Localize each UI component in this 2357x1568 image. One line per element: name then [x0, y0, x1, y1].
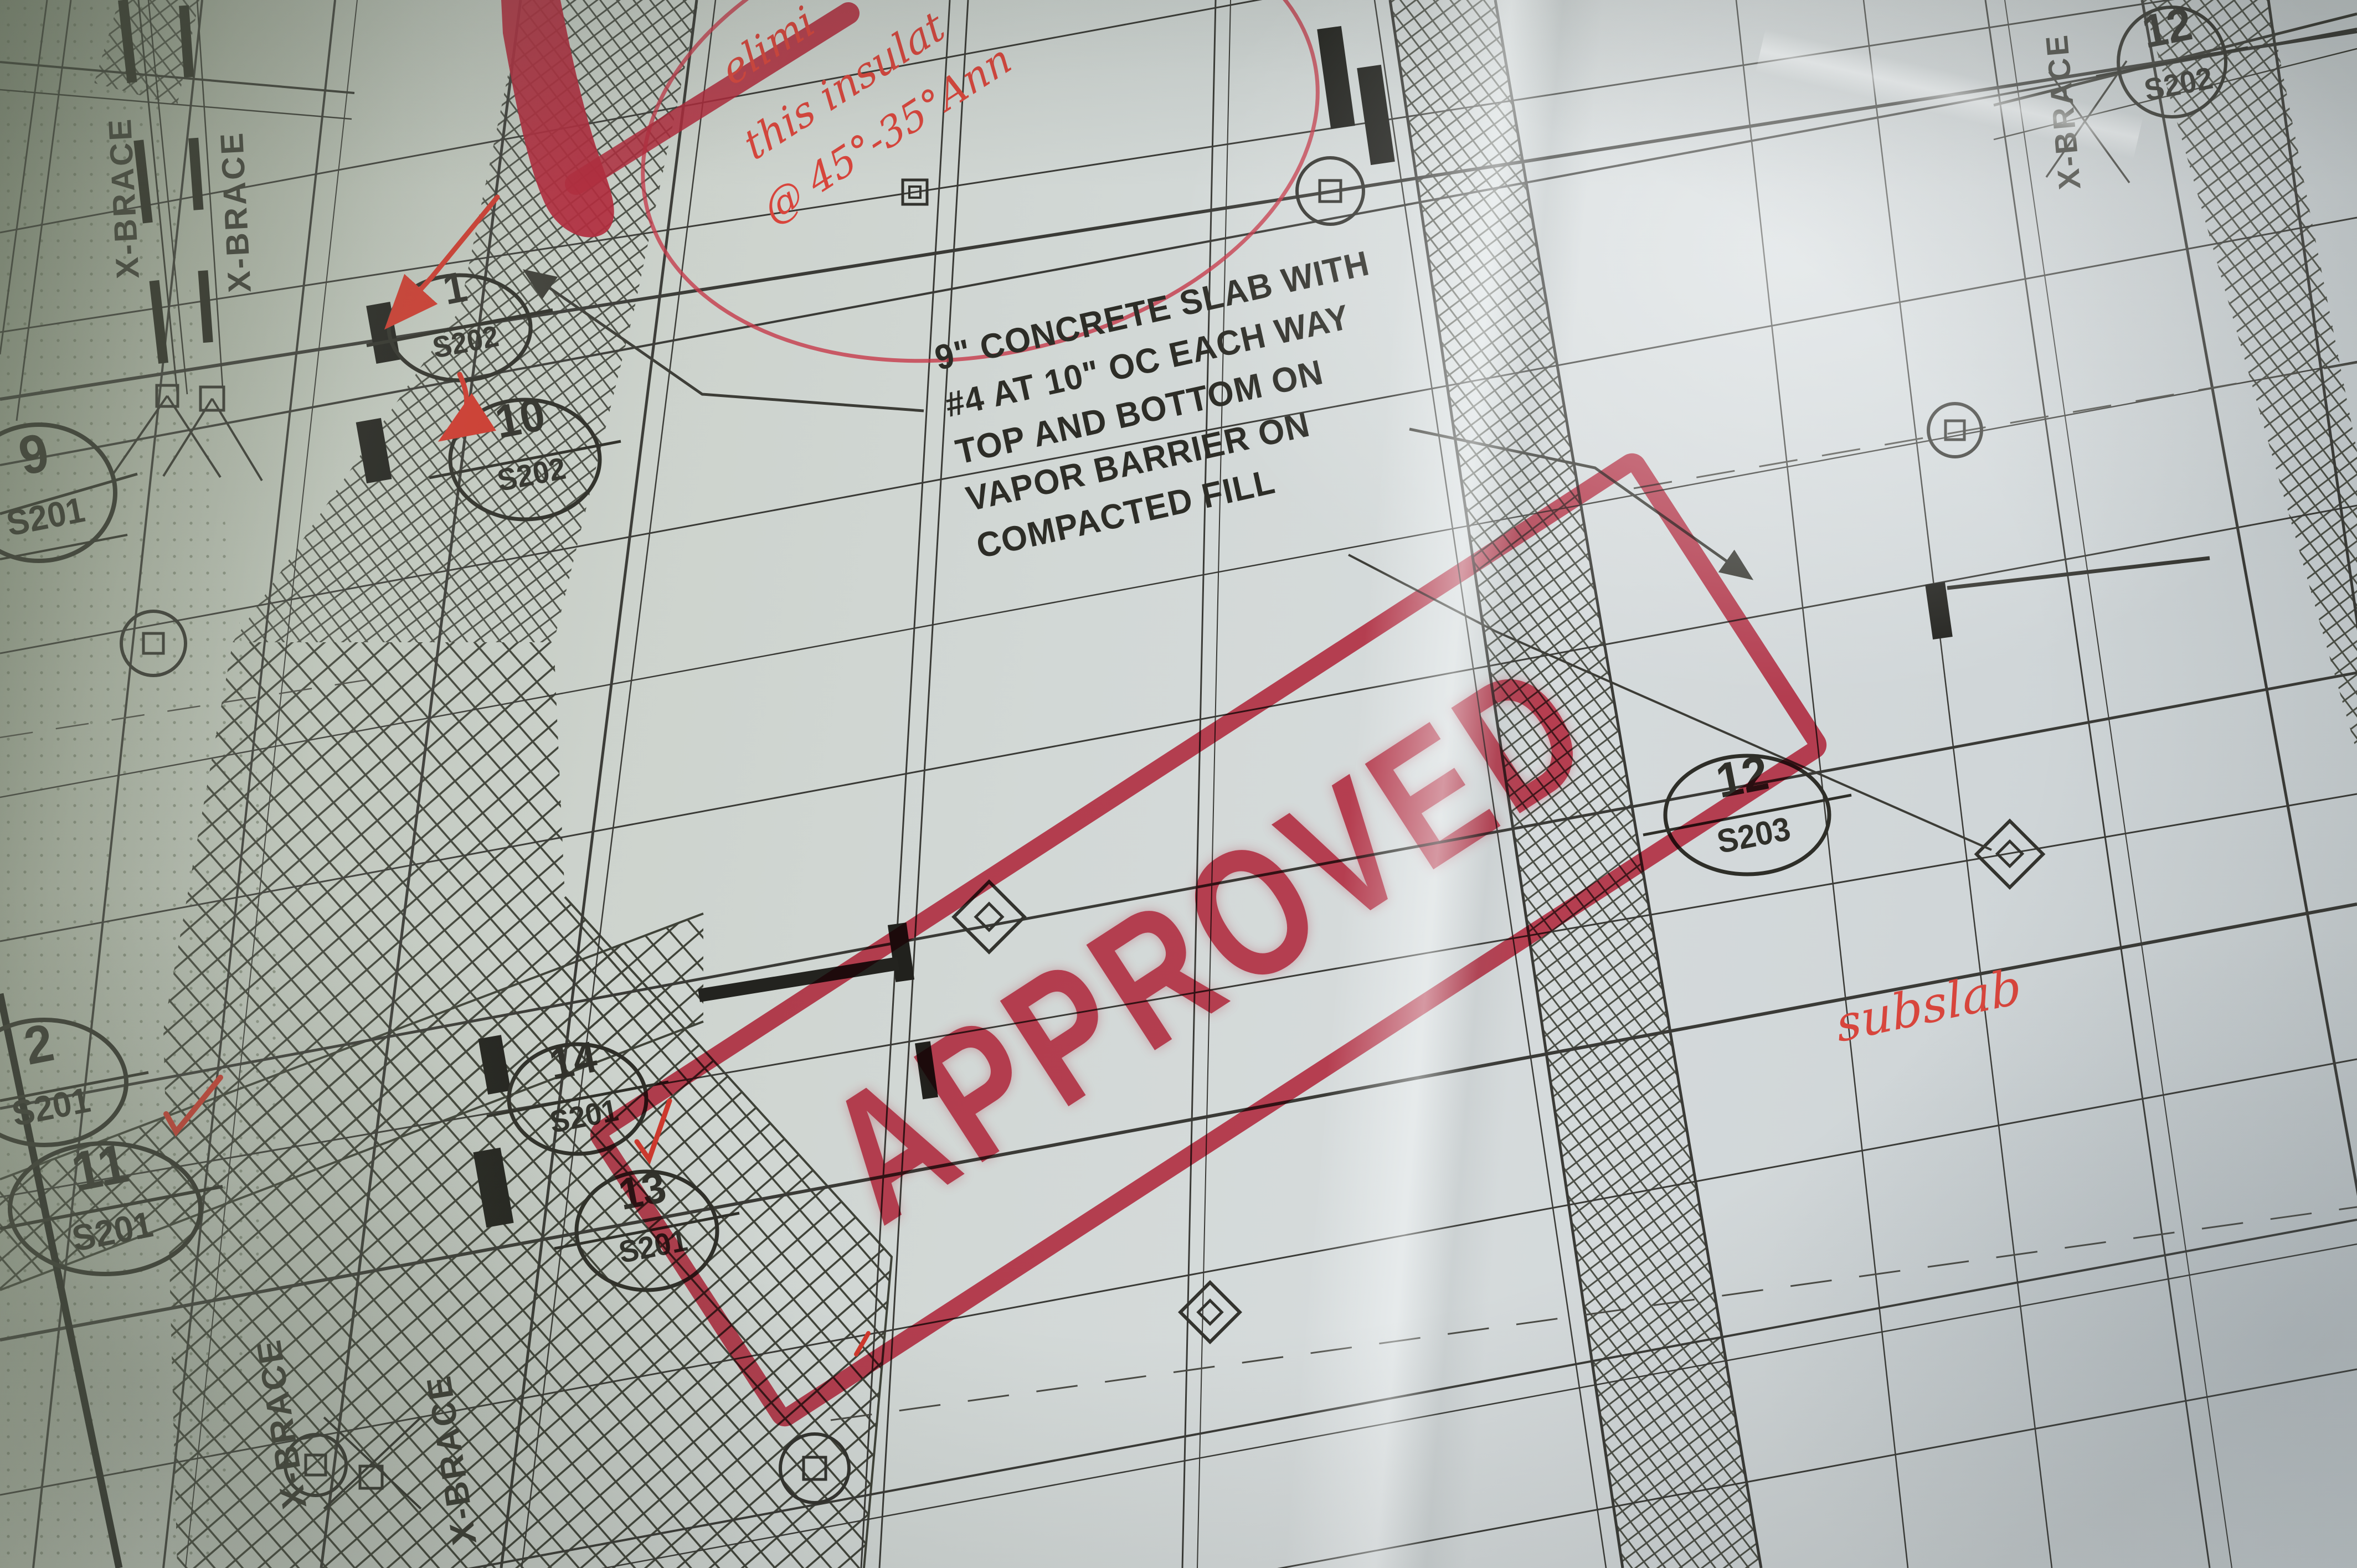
blueprint-photo: 9" CONCRETE SLAB WITH #4 AT 10" OC EACH …	[0, 0, 2357, 1568]
callout-number: 12	[2139, 0, 2196, 55]
callout-number: 11	[68, 1135, 133, 1200]
callout-number: 10	[492, 390, 549, 445]
callout-number: 2	[20, 1016, 58, 1074]
callout-number: 14	[545, 1034, 600, 1087]
callout-number: 9	[14, 425, 53, 483]
callout-number: 1	[440, 265, 470, 311]
